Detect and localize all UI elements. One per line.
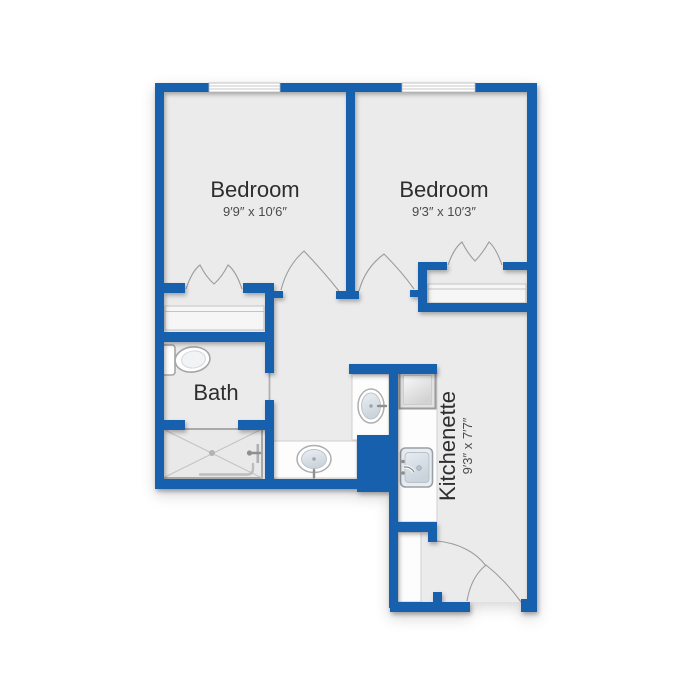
bedroom1-dimensions: 9′9″ x 10′6″ — [223, 204, 287, 219]
bedroom2-dimensions: 9′3″ x 10′3″ — [412, 204, 476, 219]
floor-plan: Bedroom 9′9″ x 10′6″ Bedroom 9′3″ x 10′3… — [155, 83, 537, 612]
vanity-counter — [271, 441, 357, 478]
closet-shelf-icon — [165, 306, 264, 330]
kitchen-sink-icon — [401, 448, 433, 487]
window-icon — [402, 83, 475, 92]
window-icon — [209, 83, 280, 92]
bath-label: Bath — [193, 380, 238, 405]
floor-area — [164, 92, 527, 602]
floor-plan-canvas: Bedroom 9′9″ x 10′6″ Bedroom 9′3″ x 10′3… — [0, 0, 700, 700]
kitchenette-dimensions: 9′3″ x 7′7″ — [460, 417, 475, 474]
entry-niche — [398, 532, 421, 602]
refrigerator-icon — [400, 372, 436, 409]
vanity-counter — [352, 374, 389, 440]
bedroom1-label: Bedroom — [210, 177, 299, 202]
closet-shelf-icon — [428, 284, 526, 303]
floor-plan-page: Bedroom 9′9″ x 10′6″ Bedroom 9′3″ x 10′3… — [0, 0, 700, 700]
shower-icon — [163, 429, 262, 478]
kitchen-counter — [398, 372, 437, 523]
kitchenette-label: Kitchenette — [435, 391, 460, 501]
bedroom2-label: Bedroom — [399, 177, 488, 202]
